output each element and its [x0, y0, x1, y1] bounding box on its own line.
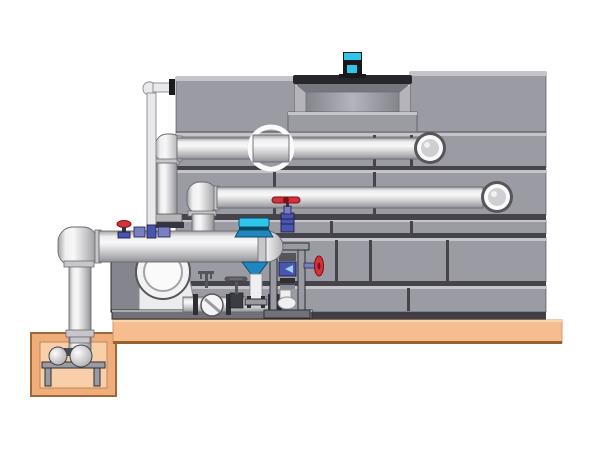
frame-top-block [279, 253, 296, 261]
tower-seam-band [176, 166, 546, 170]
gate-valve-stem [235, 281, 238, 294]
tower-row-e-seam [335, 240, 338, 281]
control-valve-column [250, 274, 262, 301]
column-flange [245, 299, 267, 305]
fan-motor-window [347, 65, 357, 73]
pipe-flange [193, 294, 198, 315]
header-fittings [134, 225, 170, 238]
handwheel-stem [304, 263, 315, 268]
globe-valve-body [281, 213, 294, 232]
wall-penetration-ring [481, 181, 513, 213]
pad-slab [113, 320, 562, 343]
wall-penetration-ring [414, 132, 446, 164]
pump-stand-leg [94, 368, 100, 386]
standpipe-vertical [147, 93, 156, 232]
pad-bottom-edge [113, 341, 562, 344]
concrete-pad [113, 320, 562, 344]
fan-motor [339, 52, 366, 78]
union-fitting [134, 227, 145, 237]
riser-coupling [66, 330, 94, 337]
pipe-elbow [187, 182, 217, 214]
fan-recess-front-band [288, 112, 417, 133]
small-valve-stem [122, 227, 126, 232]
vertical-drop-pipe [157, 163, 177, 217]
pipe-run [177, 138, 419, 159]
tower-row-b-edge [176, 133, 546, 136]
riser-coupling [70, 337, 90, 343]
bleed-valve-prong [210, 274, 212, 279]
frame-base [264, 310, 310, 318]
standpipe-wall-flange [169, 79, 175, 95]
tower-row-c-edge [176, 170, 546, 173]
pump-volute-end [70, 345, 92, 367]
pipe-coupling-sleeve [253, 135, 289, 162]
gate-valve-handle-knob [225, 277, 230, 282]
bleed-valve-prong [200, 274, 202, 279]
tower-row-f-edge [176, 286, 546, 289]
gate-valve-handle-knob [243, 277, 248, 282]
tower-top-left-panel-edge [176, 77, 295, 81]
small-red-handwheel [117, 221, 131, 228]
fan-motor-cap [344, 53, 361, 60]
fan-recess-front-band-edge [288, 112, 417, 115]
pump-motor-end [49, 347, 67, 365]
frame-rail [298, 250, 305, 312]
tower-top-right-panel [410, 72, 546, 132]
pipe-run [217, 187, 483, 208]
tower-row-f-seam [407, 288, 410, 311]
header-elbow [58, 227, 98, 266]
diagram-canvas: Cooling tower with fan motor, piping run… [0, 0, 600, 450]
pad-top-edge [113, 320, 562, 322]
diagram-stage: Cooling tower with fan motor, piping run… [0, 0, 600, 450]
header-collar [64, 261, 94, 267]
red-handwheel-hub [318, 263, 321, 270]
ring-elbow-dome [421, 139, 439, 157]
tower-top-right-panel-edge [410, 72, 546, 76]
union-fitting [158, 227, 170, 237]
control-valve-skirt [235, 230, 273, 237]
union-fitting [147, 225, 156, 238]
tower-row-d-edge [176, 220, 546, 222]
tower-seam-band [176, 281, 546, 286]
bleed-valve-bar [198, 271, 214, 274]
fan-cowl [293, 75, 412, 118]
small-valve-body [118, 232, 130, 238]
makeup-valve-small [117, 221, 131, 239]
tower-row-e-seam [446, 240, 449, 281]
frame-block [280, 278, 295, 283]
tower-row-d-seam [410, 221, 413, 233]
bleed-valve-stem [205, 274, 208, 288]
tower-seam-band [176, 214, 546, 220]
standpipe-stub [153, 83, 171, 92]
pump-stand-leg [45, 368, 51, 386]
ring-highlight [424, 142, 430, 148]
globe-valve-bonnet [284, 206, 291, 214]
frame-block [280, 285, 295, 289]
riser-pipe [66, 262, 94, 350]
control-valve-cap [239, 218, 269, 227]
gate-valve-body [230, 293, 243, 308]
tower-row-d-seam [330, 221, 333, 233]
ring-highlight [491, 191, 497, 197]
tower-top-left-panel [176, 77, 295, 132]
frame-elbow-foot [278, 297, 296, 309]
globe-valve-handle-hub [283, 197, 289, 203]
tower-row-e-seam [369, 240, 372, 281]
ring-elbow-dome [488, 188, 506, 206]
